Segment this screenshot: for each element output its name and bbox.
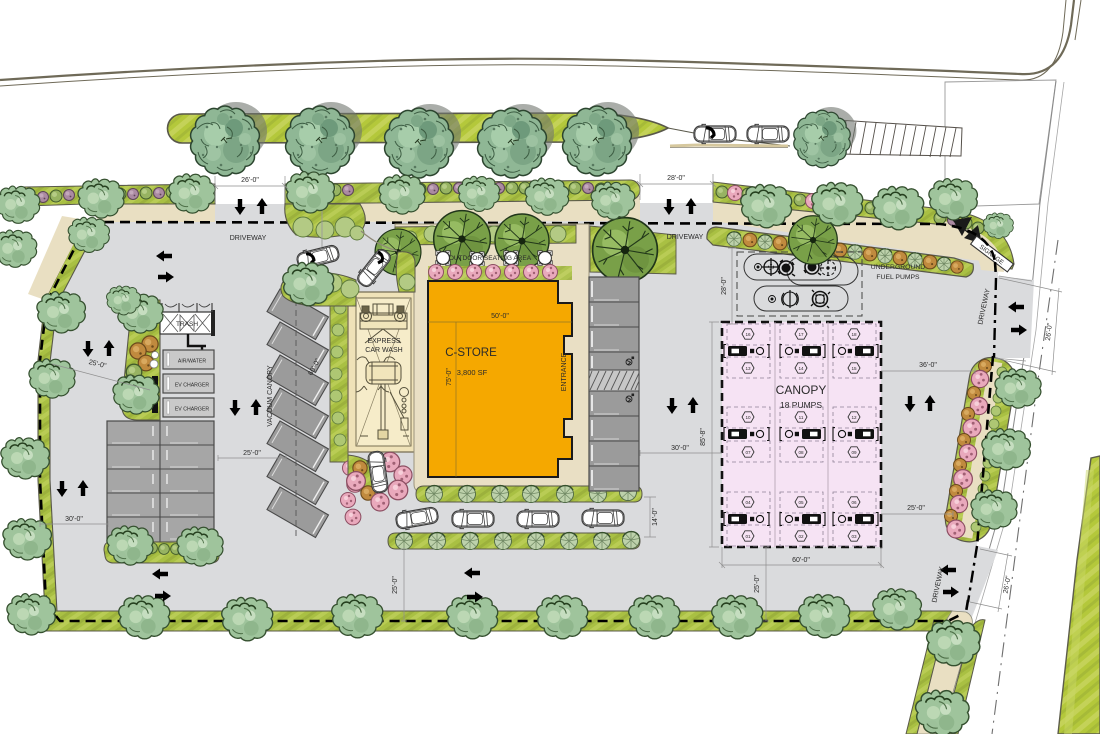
svg-text:25'-0": 25'-0" (243, 450, 261, 457)
svg-text:CAR WASH: CAR WASH (365, 347, 402, 354)
svg-text:05: 05 (798, 500, 804, 505)
svg-text:FUEL PUMPS: FUEL PUMPS (876, 274, 920, 281)
svg-text:AIR/WATER: AIR/WATER (178, 359, 206, 365)
svg-text:26'-0": 26'-0" (241, 177, 259, 184)
svg-text:VACUUM CANOPY: VACUUM CANOPY (267, 365, 274, 427)
svg-text:08: 08 (798, 450, 804, 455)
svg-text:04: 04 (745, 500, 751, 505)
svg-text:30'-0": 30'-0" (671, 445, 689, 452)
svg-text:60'-0": 60'-0" (792, 557, 810, 564)
svg-text:DRIVEWAY: DRIVEWAY (667, 234, 704, 241)
svg-text:07: 07 (745, 450, 751, 455)
svg-text:15: 15 (851, 366, 857, 371)
svg-text:85'-8": 85'-8" (700, 428, 707, 446)
svg-text:OUTDOOR SEATING AREA: OUTDOOR SEATING AREA (449, 255, 532, 262)
svg-text:EV CHARGER: EV CHARGER (175, 407, 210, 413)
svg-text:36'-0": 36'-0" (919, 362, 937, 369)
svg-text:30'-0": 30'-0" (65, 516, 83, 523)
svg-text:09: 09 (851, 450, 857, 455)
svg-text:C-STORE: C-STORE (445, 347, 497, 359)
svg-text:25'-0": 25'-0" (392, 576, 399, 594)
svg-text:12: 12 (851, 415, 857, 420)
svg-text:EV CHARGER: EV CHARGER (175, 383, 210, 389)
svg-text:10: 10 (745, 415, 751, 420)
svg-text:02: 02 (798, 534, 804, 539)
svg-text:25'-0": 25'-0" (907, 505, 925, 512)
svg-text:01: 01 (745, 534, 751, 539)
svg-text:11: 11 (799, 415, 804, 420)
svg-text:CANOPY: CANOPY (776, 383, 827, 397)
svg-text:17: 17 (798, 332, 804, 337)
svg-text:ENTRANCE: ENTRANCE (561, 352, 568, 391)
svg-text:14'-0": 14'-0" (652, 508, 659, 526)
svg-text:28'-0": 28'-0" (667, 175, 685, 182)
svg-text:14: 14 (798, 366, 804, 371)
svg-text:18: 18 (851, 332, 857, 337)
svg-text:18 PUMPS: 18 PUMPS (780, 400, 822, 410)
svg-text:16: 16 (745, 332, 751, 337)
svg-text:13: 13 (745, 366, 751, 371)
svg-text:EXPRESS: EXPRESS (367, 338, 400, 345)
svg-text:03: 03 (851, 534, 857, 539)
svg-text:UNDERGROUND: UNDERGROUND (871, 264, 925, 271)
svg-text:06: 06 (851, 500, 857, 505)
svg-text:TRASH: TRASH (176, 321, 198, 328)
svg-text:25'-0": 25'-0" (754, 575, 761, 593)
svg-text:3,800 SF: 3,800 SF (457, 368, 488, 377)
svg-text:50'-0": 50'-0" (491, 313, 509, 320)
svg-text:75'-0": 75'-0" (446, 368, 453, 386)
svg-text:28'-0": 28'-0" (721, 277, 728, 295)
svg-text:DRIVEWAY: DRIVEWAY (230, 235, 267, 242)
